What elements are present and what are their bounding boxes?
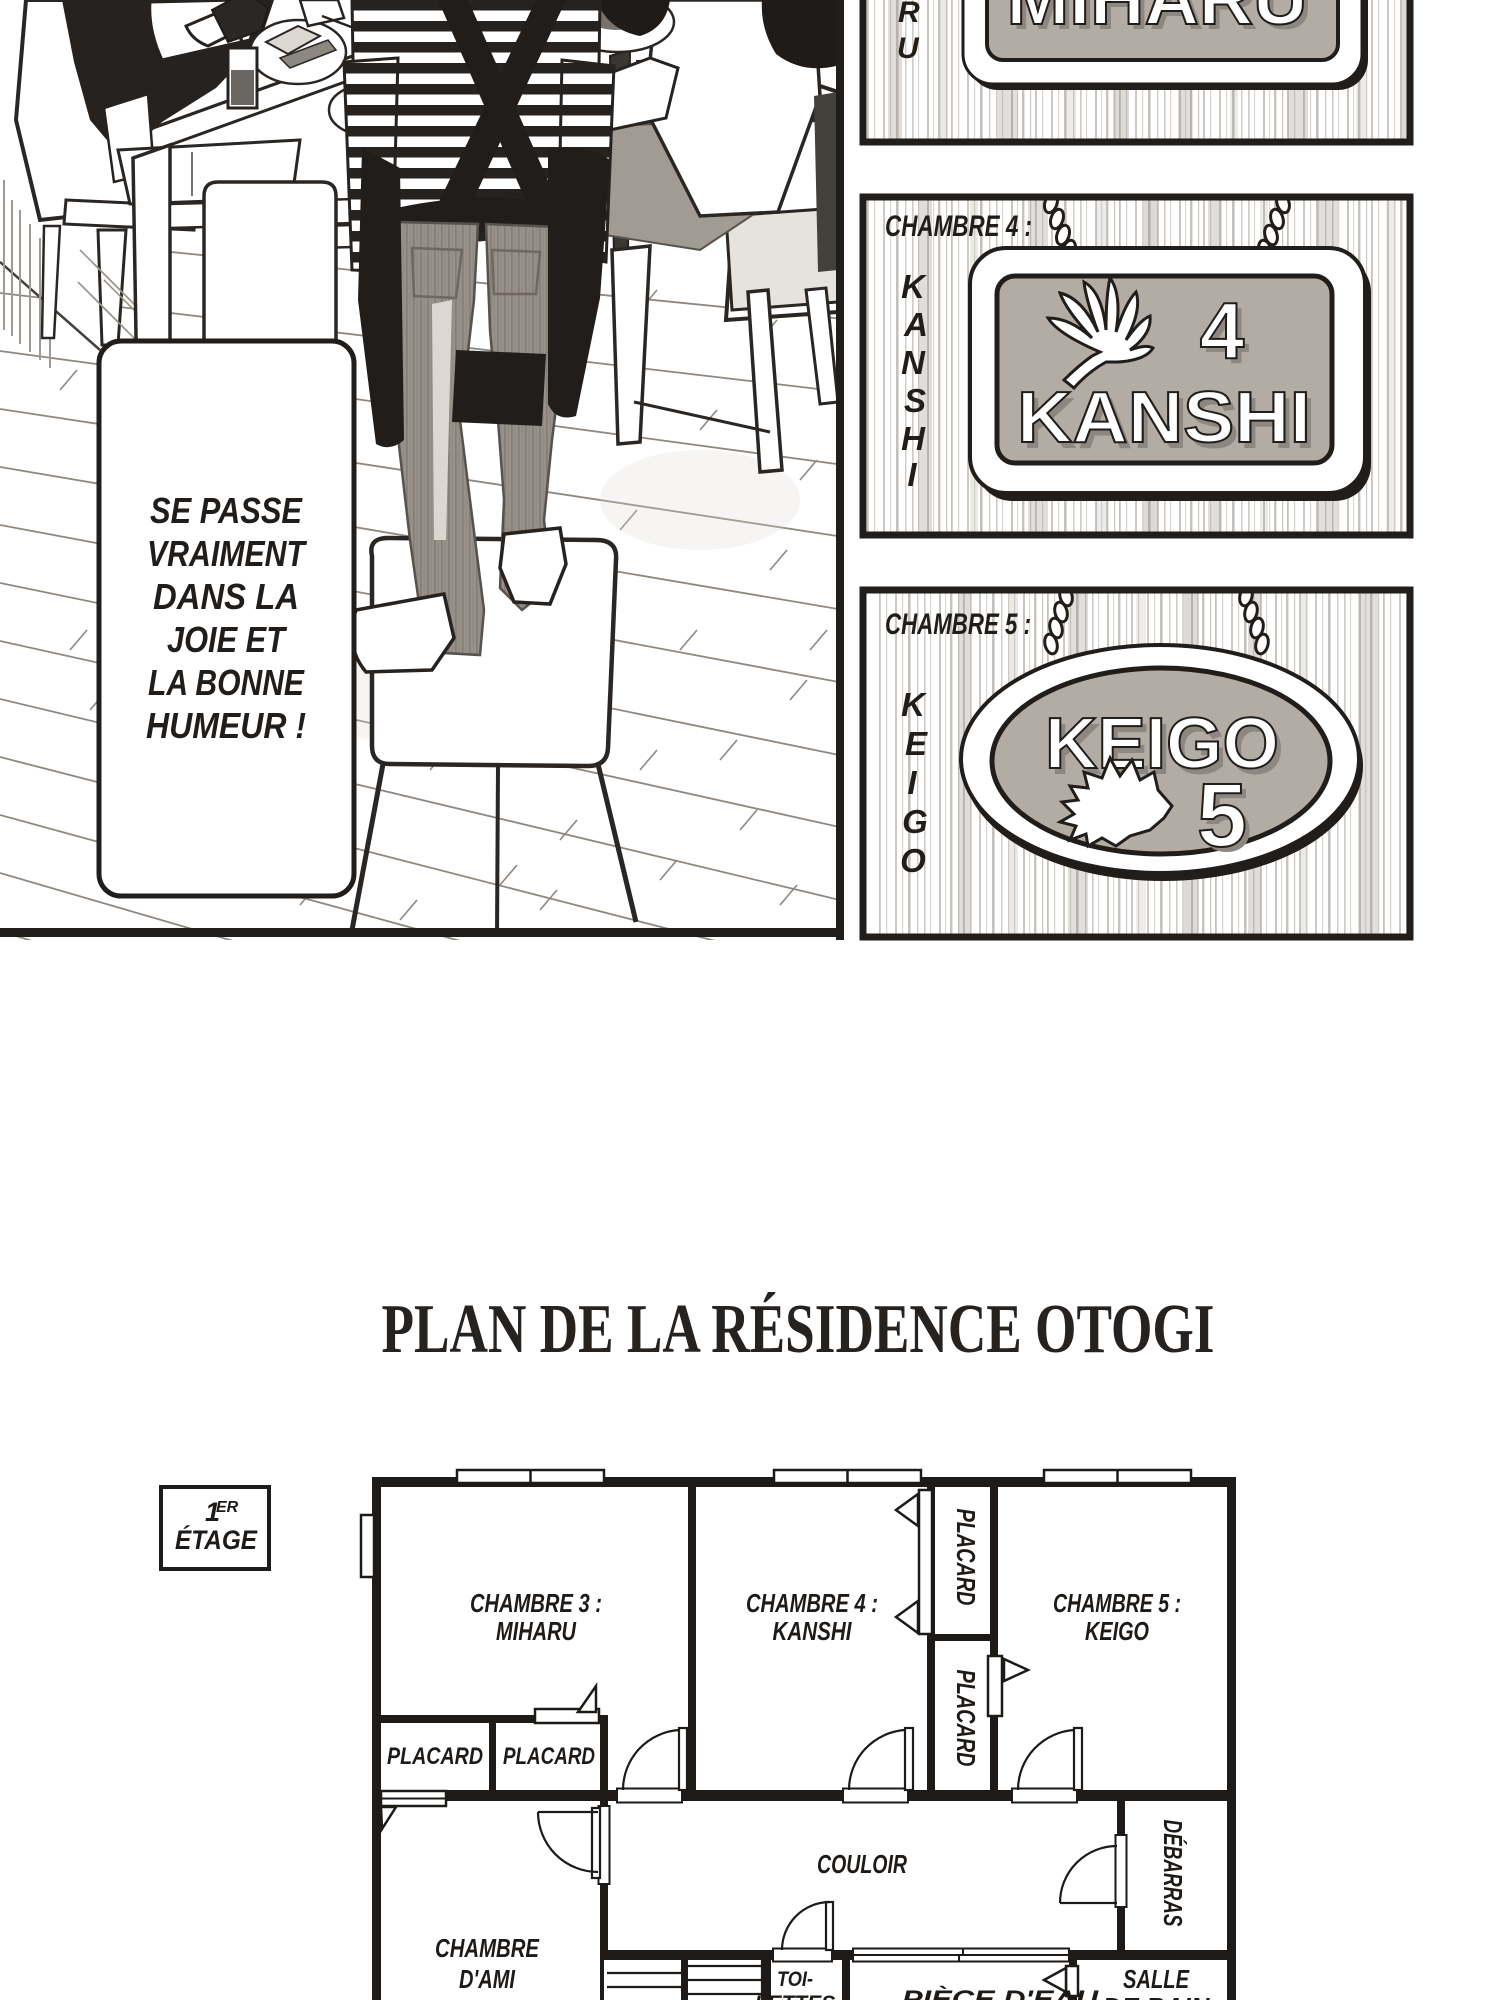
svg-text:K: K xyxy=(901,686,927,723)
svg-text:U: U xyxy=(897,32,920,65)
svg-text:PLACARD: PLACARD xyxy=(387,1743,483,1770)
svg-text:KEIGO: KEIGO xyxy=(1085,1616,1149,1646)
svg-text:COULOIR: COULOIR xyxy=(817,1849,907,1879)
svg-text:LA BONNE: LA BONNE xyxy=(148,662,305,703)
svg-text:PLAN DE LA RÉSIDENCE OTOGI: PLAN DE LA RÉSIDENCE OTOGI xyxy=(382,1291,1215,1368)
svg-text:PIÈCE D'EAU: PIÈCE D'EAU xyxy=(902,1985,1099,2000)
svg-text:ÉTAGE: ÉTAGE xyxy=(175,1524,258,1555)
svg-text:PLACARD: PLACARD xyxy=(951,1509,981,1606)
svg-text:JOIE ET: JOIE ET xyxy=(167,619,288,660)
svg-text:R: R xyxy=(898,0,920,29)
svg-text:SALLE: SALLE xyxy=(1123,1964,1190,1994)
svg-text:5: 5 xyxy=(1197,766,1247,866)
svg-text:KANSHI: KANSHI xyxy=(1017,378,1311,458)
svg-text:CHAMBRE 3 :: CHAMBRE 3 : xyxy=(470,1588,602,1618)
svg-text:MIHARU: MIHARU xyxy=(496,1616,577,1646)
svg-text:MIHARU: MIHARU xyxy=(1007,0,1308,40)
svg-text:I: I xyxy=(907,764,917,801)
svg-text:PLACARD: PLACARD xyxy=(951,1670,981,1767)
svg-text:ER: ER xyxy=(216,1499,239,1516)
svg-text:CHAMBRE 5 :: CHAMBRE 5 : xyxy=(1053,1588,1181,1618)
svg-text:CHAMBRE 5 :: CHAMBRE 5 : xyxy=(885,608,1031,641)
svg-text:TOI-: TOI- xyxy=(777,1968,813,1991)
svg-text:HUMEUR !: HUMEUR ! xyxy=(146,705,306,746)
svg-text:PLACARD: PLACARD xyxy=(503,1743,595,1770)
svg-text:G: G xyxy=(902,803,928,840)
svg-text:LETTES: LETTES xyxy=(755,1992,836,2000)
svg-text:N: N xyxy=(901,344,926,381)
svg-text:A: A xyxy=(903,306,928,343)
svg-text:E: E xyxy=(905,725,928,762)
svg-text:H: H xyxy=(901,420,926,457)
svg-text:CHAMBRE 4 :: CHAMBRE 4 : xyxy=(746,1588,878,1618)
svg-text:O: O xyxy=(900,842,926,879)
svg-text:I: I xyxy=(907,456,917,493)
svg-text:KANSHI: KANSHI xyxy=(773,1616,853,1646)
svg-text:S: S xyxy=(904,382,926,419)
svg-text:VRAIMENT: VRAIMENT xyxy=(147,533,308,574)
svg-text:K: K xyxy=(901,268,927,305)
svg-text:DANS LA: DANS LA xyxy=(153,576,299,617)
svg-text:CHAMBRE: CHAMBRE xyxy=(435,1933,540,1963)
svg-text:SE PASSE: SE PASSE xyxy=(150,490,303,531)
svg-text:D'AMI: D'AMI xyxy=(459,1964,516,1994)
svg-text:4: 4 xyxy=(1200,286,1245,375)
svg-text:DE BAIN: DE BAIN xyxy=(1103,1992,1211,2000)
svg-text:DÉBARRAS: DÉBARRAS xyxy=(1158,1820,1188,1927)
svg-text:CHAMBRE 4 :: CHAMBRE 4 : xyxy=(885,210,1032,243)
